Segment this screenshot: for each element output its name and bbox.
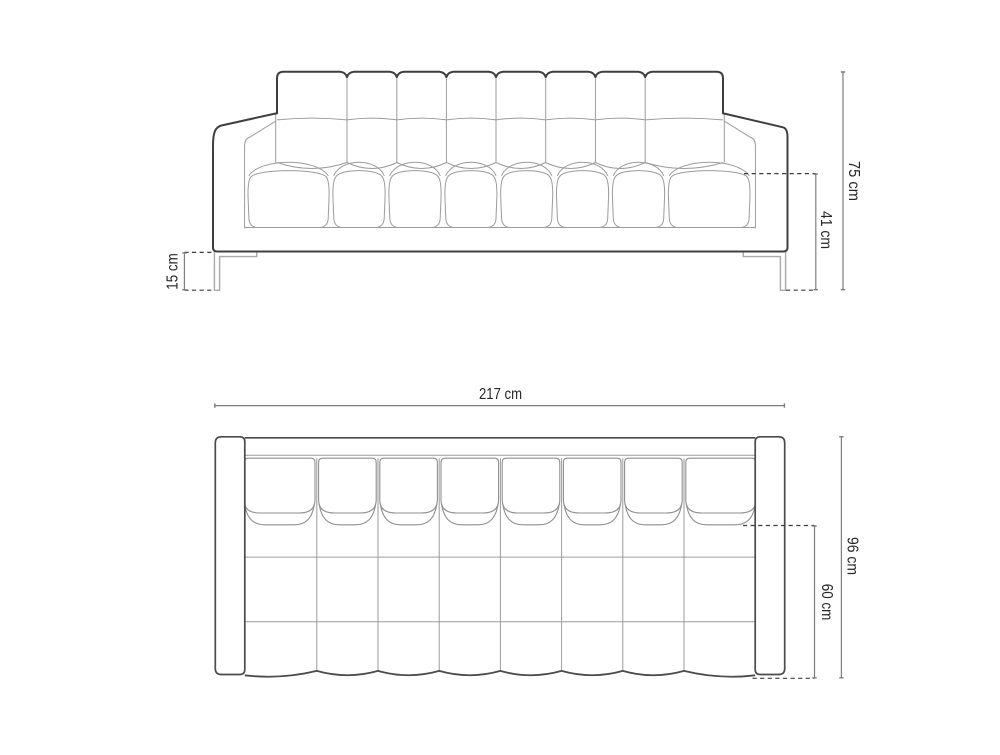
- svg-text:75 cm: 75 cm: [845, 161, 862, 201]
- svg-text:15 cm: 15 cm: [164, 253, 181, 290]
- svg-text:96 cm: 96 cm: [844, 537, 861, 575]
- svg-text:217 cm: 217 cm: [479, 386, 522, 403]
- svg-text:60 cm: 60 cm: [818, 584, 835, 621]
- svg-text:41 cm: 41 cm: [817, 211, 834, 249]
